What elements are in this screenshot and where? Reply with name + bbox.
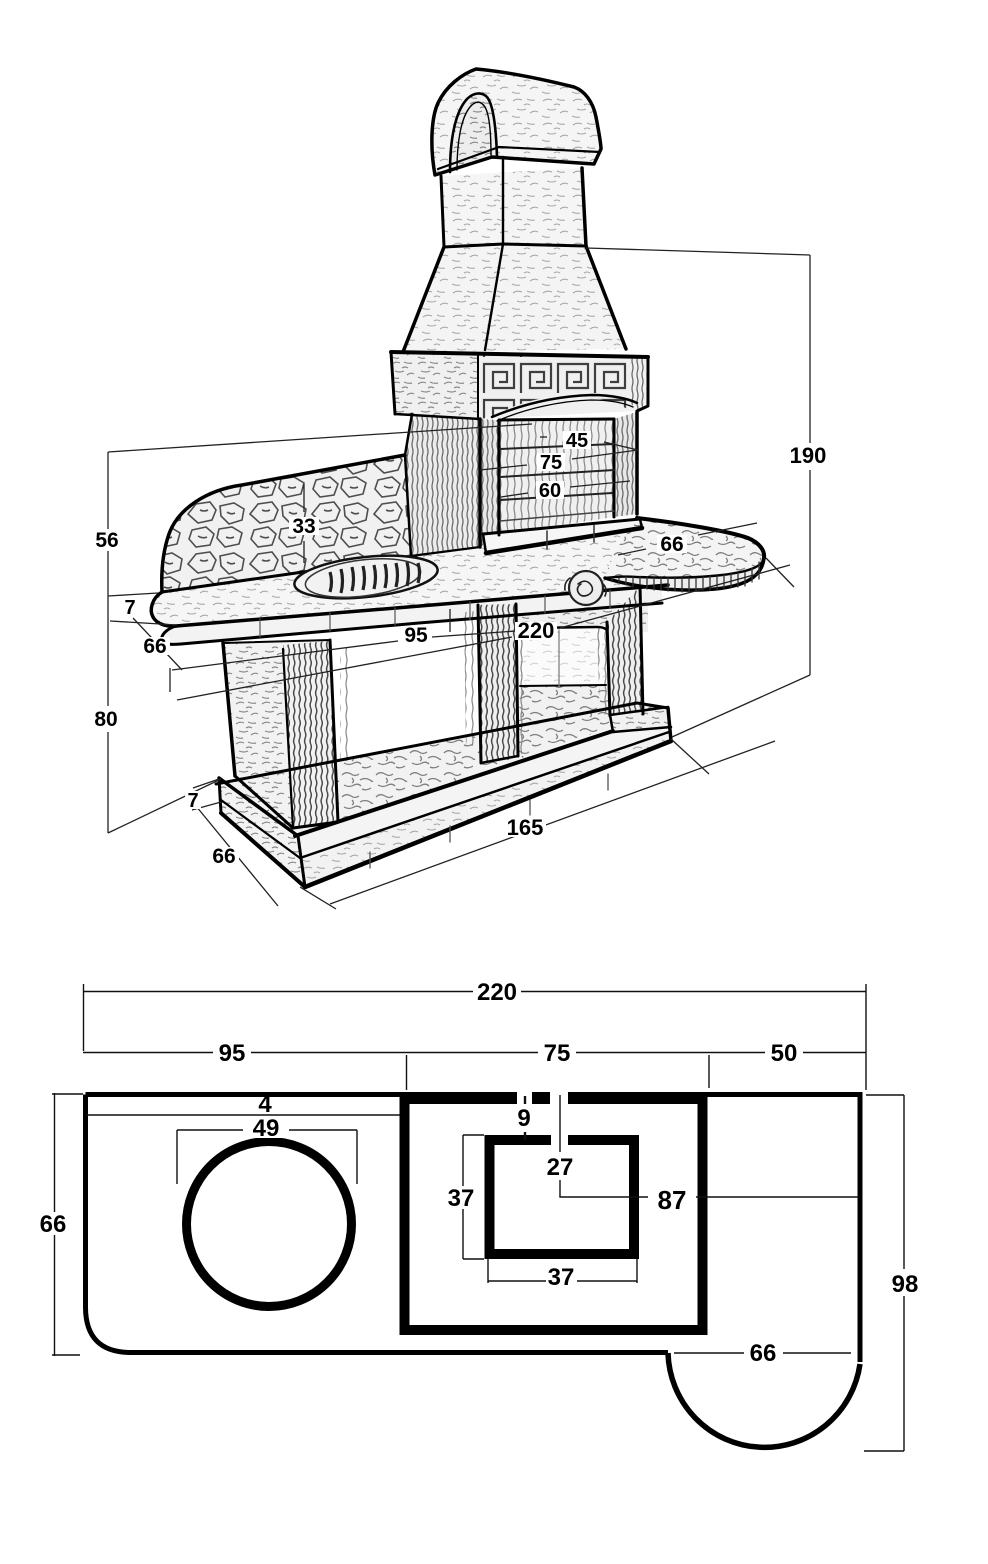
svg-text:75: 75: [544, 1040, 571, 1067]
svg-text:66: 66: [40, 1211, 67, 1238]
svg-text:66: 66: [660, 533, 683, 556]
svg-text:9: 9: [517, 1105, 530, 1132]
svg-text:7: 7: [124, 597, 135, 619]
svg-text:4: 4: [258, 1091, 272, 1118]
svg-text:220: 220: [518, 618, 555, 643]
svg-text:37: 37: [448, 1185, 475, 1212]
svg-text:95: 95: [404, 624, 428, 647]
svg-text:98: 98: [892, 1271, 919, 1298]
svg-text:33: 33: [292, 515, 315, 538]
svg-text:45: 45: [566, 430, 588, 452]
svg-text:95: 95: [219, 1040, 246, 1067]
svg-text:56: 56: [95, 529, 118, 552]
svg-text:27: 27: [547, 1154, 574, 1181]
svg-text:80: 80: [94, 708, 117, 731]
svg-text:75: 75: [540, 452, 562, 474]
svg-text:220: 220: [477, 979, 517, 1006]
svg-text:165: 165: [507, 815, 544, 840]
svg-text:50: 50: [771, 1040, 798, 1067]
svg-text:190: 190: [790, 443, 827, 468]
svg-text:66: 66: [143, 635, 166, 658]
svg-text:7: 7: [187, 790, 198, 812]
svg-text:66: 66: [212, 845, 235, 868]
svg-text:37: 37: [548, 1264, 575, 1291]
svg-text:87: 87: [658, 1185, 687, 1215]
svg-text:66: 66: [750, 1340, 777, 1367]
svg-text:60: 60: [539, 480, 561, 502]
svg-text:49: 49: [253, 1115, 280, 1142]
